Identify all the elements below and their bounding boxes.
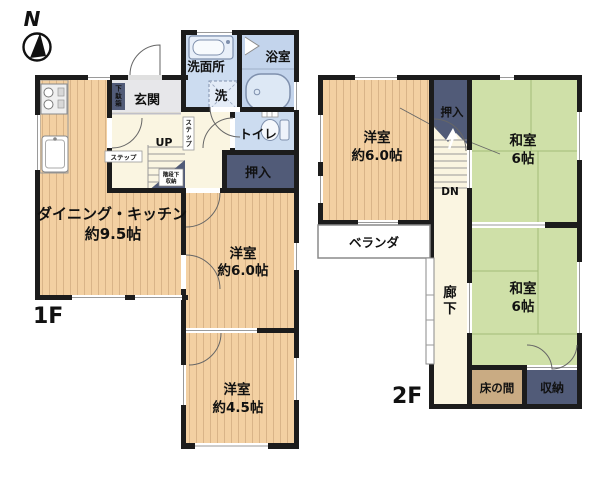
japanese1-name-label: 和室 [510, 132, 538, 149]
washer-label: 洗 [215, 88, 228, 103]
japanese1-size-label: 6帖 [512, 150, 535, 167]
closet-2f-label: 押入 [441, 105, 464, 119]
dk-name-label: ダイニング・キッチン [37, 205, 187, 223]
washroom-label: 洗面所 [187, 59, 225, 74]
stove-icon [41, 84, 67, 114]
vanity-sink-icon [189, 36, 233, 59]
kitchen-sink-icon [42, 136, 68, 172]
step-label-vertical: ステップ [186, 119, 193, 149]
floor2-label: 2F [392, 384, 422, 409]
bathroom-label: 浴室 [265, 49, 291, 64]
floor-plan-page: N [0, 0, 600, 486]
shoe-cabinet-label: 下駄箱 [115, 85, 122, 108]
entrance-label: 玄関 [134, 92, 160, 108]
western6-1f-size-label: 約6.0帖 [218, 262, 269, 279]
stairs-up-label: UP [156, 136, 173, 149]
step-label-horizontal: ステップ [111, 153, 138, 162]
veranda-label: ベランダ [349, 235, 400, 250]
entrance-door-arc [130, 45, 160, 75]
western6-1f-name-label: 洋室 [230, 245, 257, 262]
japanese2-name-label: 和室 [510, 280, 538, 297]
compass-icon: N [24, 7, 51, 61]
japanese2-size-label: 6帖 [512, 298, 535, 315]
entrance-doorway [128, 75, 162, 80]
floor1-label: 1F [33, 304, 63, 329]
under-stairs-label-1: 階段下 [163, 171, 180, 179]
tokonoma-label: 床の間 [480, 381, 515, 395]
compass-north-label: N [24, 7, 41, 31]
toilet-label: トイレ [239, 127, 277, 142]
storage-label: 収納 [540, 380, 564, 395]
under-stairs-label-2: 収納 [165, 177, 177, 185]
closet-1f-label: 押入 [245, 165, 271, 181]
corridor-label: 廊下 [443, 284, 457, 317]
stairs-down-label: DN [441, 186, 459, 198]
dk-size-label: 約9.5帖 [85, 225, 142, 243]
corridor-window-strip [426, 258, 434, 364]
western6-2f-name-label: 洋室 [364, 129, 391, 146]
western45-name-label: 洋室 [224, 381, 251, 398]
floor-plan-svg: N [0, 0, 600, 486]
western6-2f-size-label: 約6.0帖 [352, 147, 403, 164]
western45-size-label: 約4.5帖 [213, 399, 264, 416]
